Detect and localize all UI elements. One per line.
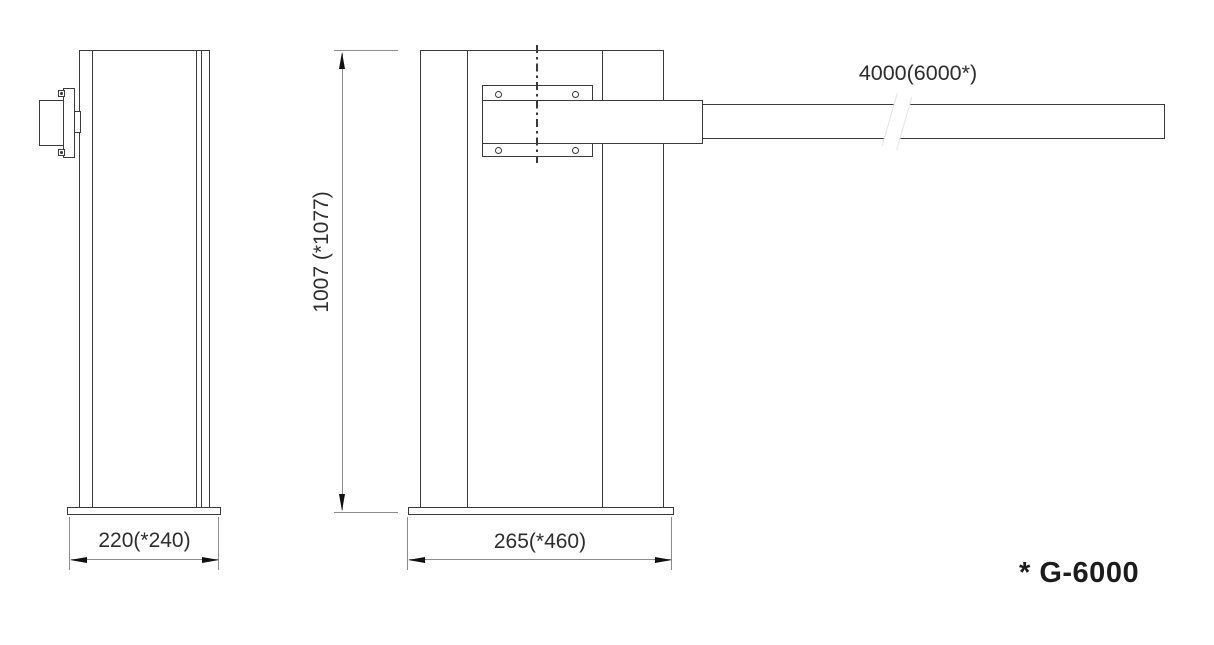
flange-hole — [572, 147, 579, 154]
arrowhead-right — [202, 557, 219, 563]
boom-cross-section — [39, 100, 64, 146]
flange-hole — [495, 91, 502, 98]
bracket-bolt — [58, 149, 65, 156]
side-pillar-profile-line — [92, 51, 93, 507]
side-base-plate — [67, 507, 221, 515]
technical-drawing-canvas: 220(*240) 1007 (*1077) 265(*460) — [0, 0, 1214, 645]
flange-hole — [572, 91, 579, 98]
bracket-spacer — [74, 111, 81, 133]
arrowhead-up — [339, 52, 345, 69]
side-pillar-outline — [79, 50, 210, 508]
arm-length-label: 4000(6000*) — [818, 61, 1018, 86]
bracket-bolt — [58, 90, 65, 97]
dimension-line — [409, 559, 671, 560]
boom-arm-root-section — [482, 100, 703, 144]
front-pillar-profile-line — [467, 51, 468, 507]
flange-hole — [495, 147, 502, 154]
side-pillar-profile-line — [196, 51, 197, 507]
bolt-dot — [60, 151, 63, 154]
arrowhead-left — [408, 557, 425, 563]
flange-centerline — [536, 45, 538, 163]
pillar-height-label: 1007 (*1077) — [311, 177, 333, 327]
front-base-plate — [408, 507, 674, 515]
arrowhead-down — [339, 494, 345, 511]
extension-line — [334, 512, 398, 513]
dimension-line — [342, 53, 343, 510]
arrowhead-right — [655, 557, 672, 563]
boom-arm — [702, 104, 1165, 139]
front-width-label: 265(*460) — [408, 530, 672, 554]
side-width-label: 220(*240) — [70, 529, 219, 553]
side-pillar-profile-line — [201, 51, 202, 507]
dimension-line — [71, 559, 218, 560]
model-note-label: * G-6000 — [1019, 557, 1139, 590]
bolt-dot — [60, 92, 63, 95]
arrowhead-left — [70, 557, 87, 563]
